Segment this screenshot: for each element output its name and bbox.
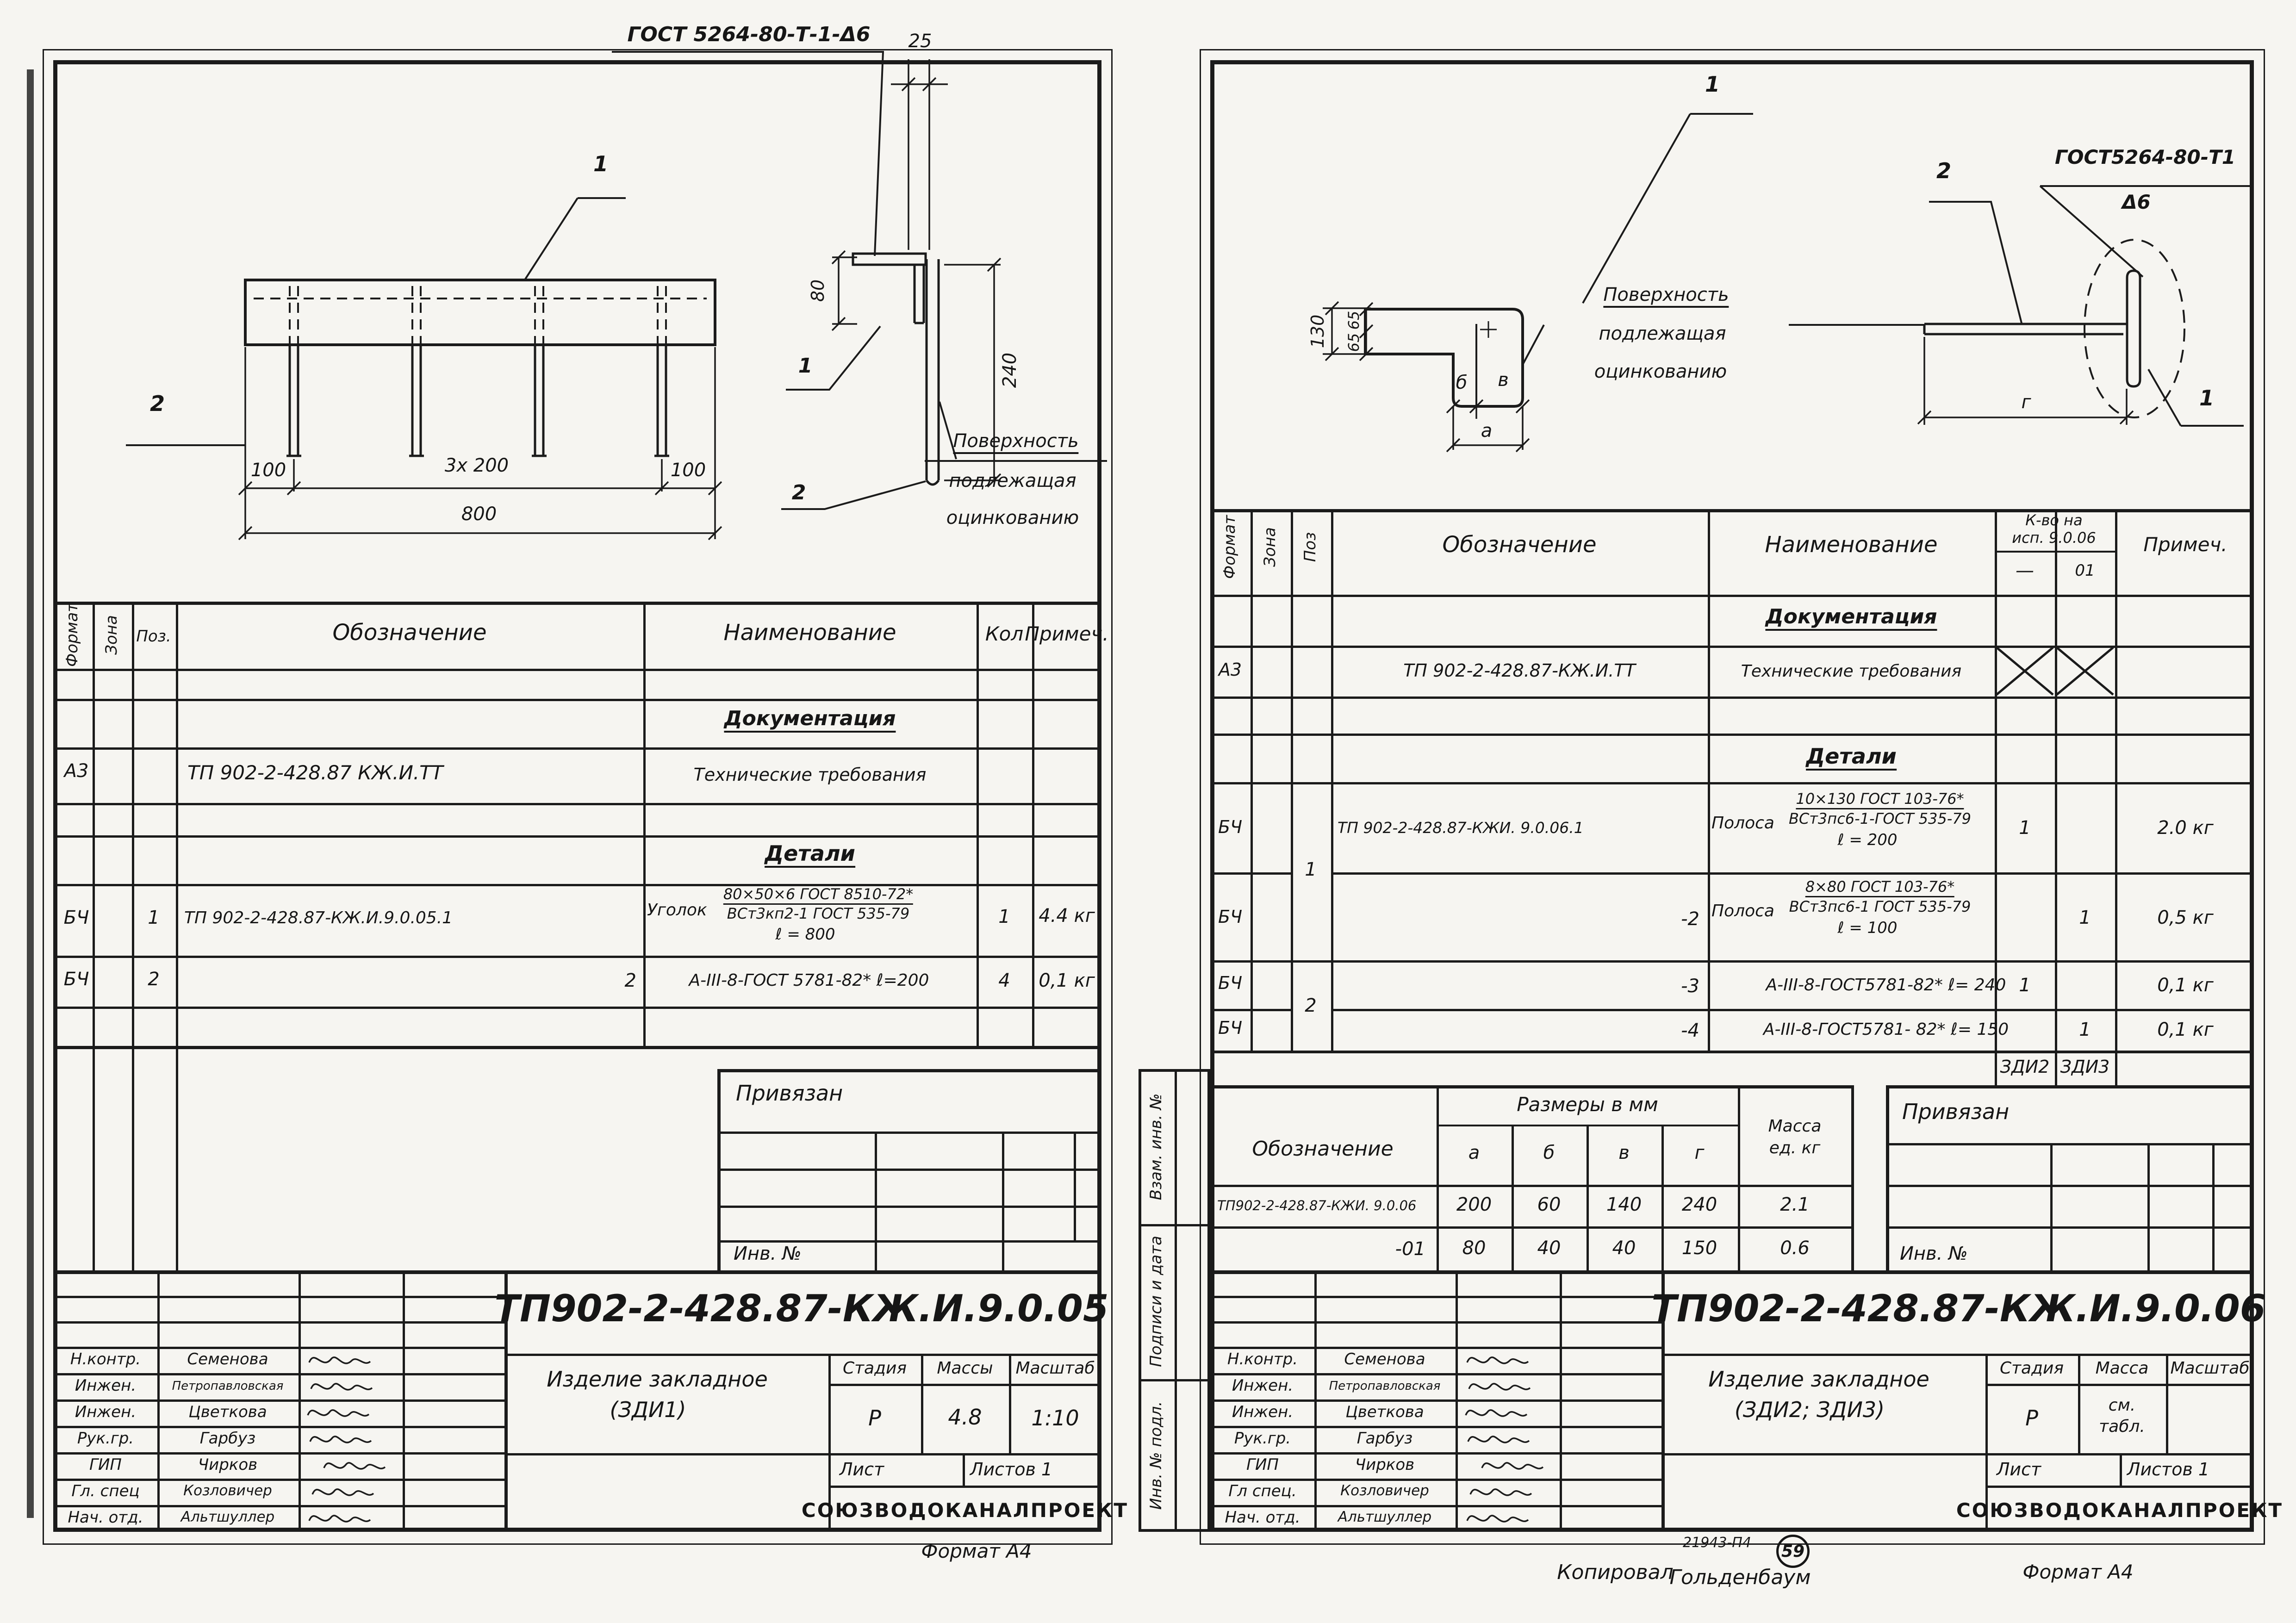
grid-line [2147, 1143, 2150, 1270]
cell-text: ТП 902-2-428.87-КЖИ. 9.0.06.1 [1338, 820, 1584, 836]
grid-line [53, 803, 1101, 805]
col-header: Зона [1262, 527, 1279, 567]
cell-text: ВСт3пс6-1 ГОСТ 535-79 [1789, 899, 1971, 915]
pos-label: 2 [792, 482, 806, 504]
cell-text: 200 [1456, 1195, 1492, 1214]
grid-line [1738, 1085, 1740, 1270]
grid-line [2166, 1354, 2168, 1453]
cell-text: БЧ [1218, 1019, 1242, 1038]
pos-label: 2 [150, 392, 165, 415]
grid-line [53, 884, 1101, 886]
variant-tag: ЗДИ2 [2000, 1058, 2050, 1076]
grid-line [1074, 1132, 1076, 1240]
grid-line [132, 602, 134, 1270]
dim-label: б [1456, 373, 1468, 392]
doc-number: ТП902-2-428.87-КЖ.И.9.0.05 [495, 1289, 1109, 1328]
grid-line [828, 1486, 1101, 1488]
grid-line [1437, 1085, 1439, 1270]
cell-text: табл. [2099, 1418, 2145, 1436]
cell-text: 0.6 [1780, 1238, 1810, 1258]
col-header: Поз [1302, 532, 1319, 562]
cell-text: Полоса [1711, 815, 1774, 832]
cell-text: 1 [2079, 1020, 2091, 1039]
col-header: Формат [1222, 515, 1238, 579]
col-header: Поз. [136, 628, 171, 645]
section-header: Документация [724, 708, 896, 733]
col-header: Примеч. [2143, 535, 2227, 555]
grid-line [1139, 1224, 1210, 1226]
col-header: Наименование [723, 621, 896, 644]
cell-text: 10×130 ГОСТ 103-76* [1796, 791, 1964, 809]
grid-line [1210, 1185, 1851, 1187]
signer-name: Петропавловская [172, 1380, 284, 1393]
signer-role: Гл. спец [71, 1483, 139, 1500]
cell-text: Уголок [647, 902, 707, 919]
copy-note: Копировал [1557, 1562, 1673, 1583]
grid-line [1210, 1085, 1851, 1088]
grid-line [2212, 1143, 2215, 1270]
dim-label: 100 [251, 460, 286, 480]
cell-text: ВСт3кп2-1 ГОСТ 535-79 [727, 906, 909, 922]
strip-label: Взам. инв. № [1148, 1094, 1165, 1200]
cell-text: ℓ = 200 [1837, 832, 1897, 849]
cell-text: 0,1 кг [2157, 1020, 2214, 1039]
signer-role: Н.контр. [70, 1351, 141, 1368]
grid-line [53, 1426, 504, 1428]
dim-label: 800 [461, 504, 497, 524]
cell-text: 1 [2079, 908, 2091, 927]
cell-text: ℓ = 800 [775, 927, 835, 943]
grid-line [2050, 1143, 2053, 1270]
signer-role: Нач. отд. [68, 1510, 143, 1526]
cell-text: 1 [148, 908, 159, 927]
dim-label: 3x 200 [445, 456, 509, 475]
col-header: Обозначение [332, 621, 486, 644]
grid-line [1210, 1399, 1661, 1402]
col-header: а [1468, 1143, 1480, 1163]
grid-line [1139, 1379, 1210, 1381]
cell-text: БЧ [64, 970, 89, 989]
grid-line [2120, 1453, 2122, 1486]
grid-line [1886, 1085, 2254, 1088]
grid-line [53, 1347, 504, 1349]
cell-text: 0,1 кг [1039, 971, 1095, 990]
col-header: Зона [104, 615, 120, 655]
col-header: б [1543, 1143, 1555, 1163]
pos-label: 2 [1936, 160, 1951, 182]
col-header: Листов 1 [970, 1461, 1052, 1479]
cell-text: 240 [1682, 1195, 1717, 1214]
grid-line [1210, 509, 2254, 512]
surface-note: подлежащая [949, 471, 1076, 491]
grid-line [1210, 960, 2254, 963]
cell-text: Технические требования [694, 766, 927, 784]
cell-text: А3 [1219, 661, 1242, 679]
cell-text: 4.8 [948, 1406, 982, 1428]
signer-role: Рук.гр. [1234, 1430, 1291, 1447]
grid-line [717, 1069, 1101, 1072]
grid-line [1291, 509, 1293, 1051]
col-header: Масштаб [1015, 1360, 1095, 1377]
cell-text: 4 [998, 971, 1010, 990]
col-header: Размеры в мм [1517, 1094, 1658, 1115]
cell-text: ТП 902-2-428.87-КЖ.И.9.0.05.1 [184, 909, 453, 927]
cell-text: БЧ [64, 908, 89, 927]
grid-line [643, 602, 646, 1046]
col-header: исп. 9.0.06 [2012, 530, 2096, 546]
grid-line [1886, 1226, 2254, 1229]
grid-line [1886, 1143, 2254, 1145]
grid-line [1985, 1384, 2254, 1386]
grid-line [717, 1132, 1101, 1134]
cell-text: А-III-8-ГОСТ 5781-82* ℓ=200 [689, 972, 929, 989]
cell-text: 80×50×6 ГОСТ 8510-72* [723, 887, 913, 905]
cell-text: -4 [1681, 1021, 1699, 1040]
cell-text: А-III-8-ГОСТ5781- 82* ℓ= 150 [1763, 1021, 2009, 1038]
dim-label: 130 [1309, 315, 1327, 348]
cell-text: Инв. № [734, 1244, 802, 1263]
col-header: в [1618, 1143, 1630, 1163]
grid-line [717, 1240, 1101, 1243]
grid-line [53, 1270, 1101, 1274]
col-header: К-во на [2025, 513, 2082, 529]
grid-line [1661, 1453, 2254, 1455]
org-name: СОЮЗВОДОКАНАЛПРОЕКТ [1956, 1500, 2283, 1521]
dim-label: 100 [671, 460, 706, 480]
grid-line [875, 1132, 877, 1270]
grid-line [1560, 1270, 1562, 1532]
signer-name: Петропавловская [1329, 1380, 1441, 1393]
cell-text: 40 [1537, 1238, 1561, 1258]
cell-text: ТП 902-2-428.87-КЖ.И.ТТ [1403, 662, 1636, 680]
grid-line [53, 835, 1101, 838]
surface-note: оцинкованию [1594, 362, 1727, 381]
grid-line [1331, 509, 1333, 1051]
grid-line [2055, 509, 2057, 1085]
grid-line [299, 1270, 301, 1532]
grid-line [53, 1046, 1101, 1049]
stamp-number: 21943-П4 [1683, 1536, 1751, 1550]
grid-line [1210, 1373, 1661, 1375]
signer-role: Инжен. [75, 1378, 136, 1394]
cell-text: 0,5 кг [2157, 908, 2214, 927]
grid-line [717, 1069, 721, 1270]
signer-role: Рук.гр. [77, 1430, 134, 1447]
col-header: ед. кг [1769, 1139, 1821, 1157]
signer-name: Семенова [187, 1351, 268, 1368]
pos-label: 1 [2199, 387, 2214, 409]
grid-line [717, 1206, 1101, 1208]
stamp-circle-number: 59 [1781, 1543, 1804, 1561]
cell-text: А3 [64, 761, 89, 781]
copy-name: Гольденбаум [1669, 1567, 1811, 1588]
cell-text: БЧ [1218, 974, 1242, 993]
grid-line [1886, 1085, 1889, 1270]
variant-tag: ЗДИ3 [2060, 1058, 2110, 1076]
signer-name: Козловичер [183, 1483, 272, 1499]
grid-line [176, 602, 178, 1270]
grid-line [1314, 1270, 1317, 1532]
grid-line [403, 1270, 405, 1532]
section-header: Детали [765, 842, 855, 868]
col-header: Лист [1997, 1461, 2041, 1479]
pos-label: 1 [798, 355, 813, 377]
cell-text: 40 [1612, 1238, 1636, 1258]
dim-label: 65 [1346, 333, 1362, 352]
block-header: Привязан [1902, 1101, 2009, 1123]
grid-line [53, 1007, 1101, 1009]
cell-text: 2.1 [1780, 1195, 1810, 1214]
cell-text: 80 [1462, 1238, 1486, 1258]
signer-name: Цветкова [188, 1404, 267, 1421]
grid-line [1708, 509, 1710, 1051]
grid-line [157, 1270, 160, 1532]
cell-text: 8×80 ГОСТ 103-76* [1805, 879, 1954, 897]
cell-text: -3 [1681, 976, 1699, 996]
grid-line [1210, 595, 2254, 597]
cell-text: 4.4 кг [1039, 906, 1095, 926]
col-header: Стадия [843, 1360, 907, 1377]
grid-line [1210, 1226, 1851, 1229]
grid-line [1210, 646, 2254, 648]
cell-text: Полоса [1711, 902, 1774, 920]
scanned-drawing-page: const data = JSON.parse(document.getElem… [0, 0, 2296, 1623]
grid-line [921, 1354, 923, 1453]
cell-text: 1 [998, 907, 1010, 927]
grid-line [1210, 1347, 1661, 1349]
doc-title: (ЗДИ1) [610, 1399, 686, 1421]
binding-edge [27, 69, 34, 1518]
col-header: Примеч. [1025, 624, 1108, 644]
col-header: Масса [2096, 1360, 2149, 1377]
grid-line [53, 1479, 504, 1481]
strip-label: Инв. № подл. [1148, 1401, 1165, 1510]
grid-line [1210, 734, 2254, 736]
grid-line [53, 1399, 504, 1402]
grid-line [717, 1169, 1101, 1171]
grid-line [828, 1384, 1101, 1386]
grid-line [1210, 1296, 1661, 1298]
cell-text: Технические требования [1741, 663, 1961, 680]
surface-note: оцинкованию [946, 508, 1079, 528]
cell-text: ВСт3пс6-1-ГОСТ 535-79 [1789, 811, 1971, 827]
doc-title: (ЗДИ2; ЗДИ3) [1735, 1399, 1885, 1421]
dim-label: 65 [1346, 311, 1362, 330]
signer-name: Альтшуллер [181, 1510, 274, 1525]
grid-line [53, 1373, 504, 1375]
signer-role: Инжен. [75, 1404, 136, 1421]
grid-line [1210, 1452, 1661, 1455]
cell-text: 1 [2019, 976, 2030, 995]
grid-line [1661, 1354, 2254, 1356]
col-header: Массы [937, 1360, 993, 1377]
signer-name: Гарбуз [1357, 1430, 1413, 1447]
grid-line [963, 1453, 965, 1486]
section-header: Документация [1765, 606, 1937, 631]
grid-line [1210, 1479, 1661, 1481]
grid-line [977, 602, 979, 1046]
col-header: Лист [840, 1461, 884, 1479]
dim-label: 240 [1000, 353, 1020, 388]
signer-name: Гарбуз [200, 1430, 256, 1447]
signer-name: Семенова [1344, 1351, 1425, 1368]
grid-line [1175, 1069, 1177, 1532]
doc-number: ТП902-2-428.87-КЖ.И.9.0.06 [1652, 1289, 2266, 1328]
signer-name: Чирков [198, 1457, 257, 1474]
cell-text: Инв. № [1900, 1244, 1968, 1263]
grid-line [1032, 602, 1034, 1046]
cell-text: А-III-8-ГОСТ5781-82* ℓ= 240 [1766, 976, 2006, 994]
cell-text: Р [868, 1407, 881, 1429]
callout-weld: Δ6 [2122, 192, 2151, 212]
col-header: Масса [1768, 1118, 1822, 1135]
grid-line [1210, 1505, 1661, 1507]
grid-line [53, 1452, 504, 1455]
grid-line [93, 602, 95, 1270]
cell-text: БЧ [1218, 818, 1242, 837]
signer-role: Н.контр. [1227, 1351, 1298, 1368]
surface-note: Поверхность [1603, 285, 1729, 308]
signer-role: Инжен. [1232, 1378, 1293, 1394]
dim-label: в [1498, 370, 1509, 390]
cell-text: 1:10 [1031, 1407, 1079, 1429]
grid-line [53, 602, 1101, 605]
grid-line [504, 1354, 1101, 1356]
cell-text: Р [2025, 1407, 2038, 1429]
cell-text: 2 [625, 971, 636, 990]
col-header: Стадия [2000, 1360, 2064, 1377]
grid-line [53, 1296, 504, 1298]
signer-name: Цветкова [1345, 1404, 1424, 1421]
col-header: 01 [2075, 563, 2095, 579]
cell-text: ℓ = 100 [1837, 920, 1897, 937]
grid-line [53, 1505, 504, 1507]
grid-line [2078, 1354, 2080, 1453]
section-header: Детали [1806, 745, 1897, 771]
cell-text: -01 [1395, 1239, 1425, 1259]
signer-name: Чирков [1355, 1457, 1414, 1474]
cell-text: 140 [1606, 1195, 1642, 1214]
grid-line [53, 1321, 504, 1324]
grid-line [1210, 696, 2254, 699]
cell-text: 2 [148, 970, 159, 989]
col-header: Обозначение [1442, 533, 1596, 556]
grid-line [1985, 1486, 2254, 1488]
signer-role: ГИП [1246, 1457, 1279, 1474]
grid-line [1512, 1125, 1514, 1270]
grid-line [1210, 1051, 2254, 1053]
format-note: Формат А4 [921, 1541, 1032, 1561]
grid-line [1210, 1270, 2254, 1274]
col-header: Кол [985, 624, 1023, 644]
col-header: Обозначение [1252, 1138, 1393, 1160]
callout-gost: ГОСТ 5264-80-Т-1-Δ6 [627, 24, 870, 45]
grid-line [1995, 509, 1997, 1085]
cell-text: 2 [1305, 996, 1316, 1015]
signer-role: Инжен. [1232, 1404, 1293, 1421]
signer-name: Козловичер [1340, 1483, 1429, 1499]
col-header: — [2016, 561, 2034, 580]
grid-line [1587, 1125, 1589, 1270]
grid-line [504, 1453, 1101, 1455]
grid-line [1009, 1354, 1011, 1453]
grid-line [1661, 1125, 1664, 1270]
cell-text: 1 [2019, 818, 2030, 838]
cell-text: 60 [1537, 1195, 1561, 1214]
surface-note: подлежащая [1599, 324, 1726, 343]
grid-line [1886, 1185, 2254, 1187]
dim-label: 80 [809, 280, 828, 302]
grid-line [53, 747, 1101, 750]
grid-line [1210, 1426, 1661, 1428]
cell-text: ТП 902-2-428.87 КЖ.И.ТТ [187, 763, 443, 783]
callout-gost: ГОСТ5264-80-Т1 [2055, 147, 2235, 168]
cell-text: см. [2109, 1397, 2135, 1414]
signer-role: ГИП [89, 1457, 122, 1474]
pos-label: 1 [593, 153, 608, 175]
grid-line [1456, 1270, 1458, 1532]
cell-text: ТП902-2-428.87-КЖИ. 9.0.06 [1217, 1199, 1416, 1213]
signer-name: Альтшуллер [1338, 1510, 1431, 1525]
strip-label: Подписи и дата [1148, 1236, 1165, 1367]
col-header: Наименование [1765, 533, 1937, 556]
cell-text: -2 [1681, 909, 1699, 929]
grid-line [53, 699, 1101, 701]
signer-role: Нач. отд. [1225, 1510, 1300, 1526]
grid-line [53, 956, 1101, 958]
col-header: Масштаб [2170, 1360, 2249, 1377]
dim-label: а [1481, 421, 1493, 441]
doc-title: Изделие закладное [1708, 1368, 1929, 1390]
pos-label: 1 [1705, 73, 1720, 95]
signer-role: Гл спец. [1228, 1483, 1296, 1500]
doc-title: Изделие закладное [547, 1368, 768, 1390]
grid-line [1251, 509, 1253, 1051]
grid-line [1210, 1321, 1661, 1324]
cell-text: БЧ [1218, 908, 1242, 927]
org-name: СОЮЗВОДОКАНАЛПРОЕКТ [802, 1500, 1128, 1521]
format-note: Формат А4 [2022, 1562, 2133, 1582]
grid-line [1851, 1085, 1854, 1270]
grid-line [1210, 782, 2254, 784]
dim-label: г [2021, 392, 2031, 412]
cell-text: 2.0 кг [2157, 818, 2214, 838]
cell-text: 1 [1305, 860, 1316, 879]
grid-line [1002, 1132, 1004, 1270]
col-header: Листов 1 [2127, 1461, 2209, 1479]
cell-text: 150 [1682, 1238, 1717, 1258]
grid-line [2115, 509, 2117, 1085]
surface-note: Поверхность [953, 431, 1078, 454]
col-header: Формат [64, 603, 81, 667]
dim-label: 25 [908, 31, 932, 51]
cell-text: 0,1 кг [2157, 976, 2214, 995]
grid-line [53, 669, 1101, 671]
col-header: г [1694, 1143, 1704, 1163]
block-header: Привязан [736, 1082, 843, 1104]
